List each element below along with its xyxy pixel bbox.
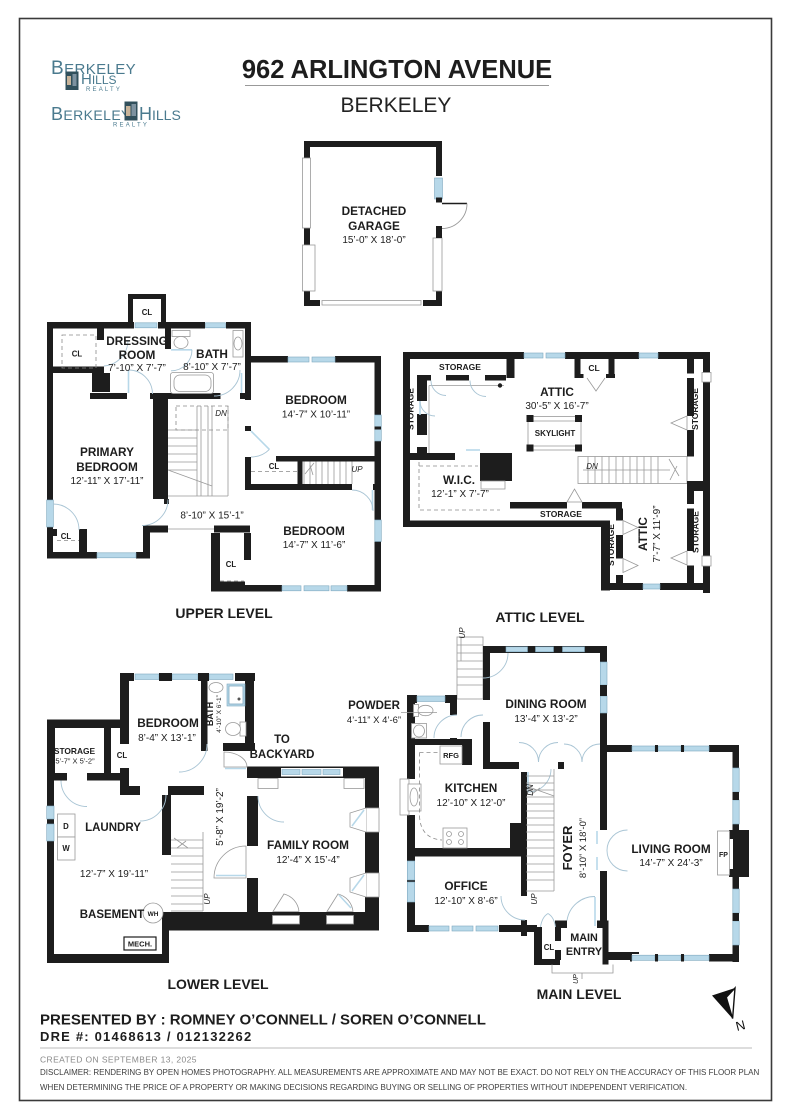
svg-text:UPPER LEVEL: UPPER LEVEL — [175, 605, 273, 621]
svg-text:ROOM: ROOM — [119, 348, 156, 362]
svg-text:MECH.: MECH. — [128, 940, 152, 949]
svg-text:W.I.C.: W.I.C. — [443, 473, 475, 487]
svg-text:12’-1” X 7’-7”: 12’-1” X 7’-7” — [431, 489, 489, 500]
svg-text:UP: UP — [203, 893, 212, 905]
svg-text:13’-4” X 13’-2”: 13’-4” X 13’-2” — [514, 714, 577, 725]
svg-text:12’-4” X 15’-4”: 12’-4” X 15’-4” — [276, 855, 339, 866]
svg-text:HILLS: HILLS — [139, 104, 181, 124]
svg-text:STORAGE: STORAGE — [406, 388, 416, 430]
svg-text:DRE #: 01468613 / 012132262: DRE #: 01468613 / 012132262 — [40, 1029, 252, 1044]
svg-text:CL: CL — [544, 943, 555, 952]
svg-text:CL: CL — [588, 363, 599, 373]
svg-text:BEDROOM: BEDROOM — [137, 716, 199, 730]
svg-text:LIVING ROOM: LIVING ROOM — [631, 842, 710, 856]
svg-text:WHEN DETERMINING THE PRICE OF: WHEN DETERMINING THE PRICE OF A PROPERTY… — [40, 1083, 687, 1092]
svg-text:CL: CL — [117, 751, 128, 760]
svg-text:RFG: RFG — [443, 751, 459, 760]
svg-text:CL: CL — [72, 350, 83, 359]
svg-text:PRESENTED BY : ROMNEY O’CONNEL: PRESENTED BY : ROMNEY O’CONNELL / SOREN … — [40, 1012, 486, 1029]
svg-text:7’-7” X 11’-9”: 7’-7” X 11’-9” — [652, 505, 663, 562]
svg-text:CL: CL — [269, 462, 280, 471]
svg-text:MAIN LEVEL: MAIN LEVEL — [537, 986, 622, 1002]
svg-text:14’-7” X 11’-6”: 14’-7” X 11’-6” — [283, 540, 346, 551]
svg-text:POWDER: POWDER — [348, 700, 400, 712]
svg-text:REALTY: REALTY — [86, 87, 122, 93]
svg-text:BASEMENT: BASEMENT — [80, 909, 145, 921]
svg-text:FAMILY ROOM: FAMILY ROOM — [267, 838, 349, 852]
svg-text:CL: CL — [61, 532, 72, 541]
svg-text:CL: CL — [226, 560, 237, 569]
svg-text:8’-4” X 13’-1”: 8’-4” X 13’-1” — [138, 733, 196, 744]
svg-text:STORAGE: STORAGE — [540, 509, 582, 519]
svg-text:GARAGE: GARAGE — [348, 219, 400, 233]
svg-text:30’-5” X 16’-7”: 30’-5” X 16’-7” — [525, 401, 588, 412]
svg-text:BATH: BATH — [205, 702, 215, 726]
svg-text:MAIN: MAIN — [570, 932, 598, 944]
svg-text:STORAGE: STORAGE — [54, 746, 96, 756]
svg-text:8’-10” X 7’-7”: 8’-10” X 7’-7” — [183, 362, 241, 373]
svg-text:DETACHED: DETACHED — [342, 204, 407, 218]
svg-text:STORAGE: STORAGE — [691, 511, 701, 553]
svg-text:BATH: BATH — [196, 347, 228, 361]
svg-text:8’-10” X 15’-1”: 8’-10” X 15’-1” — [180, 511, 243, 522]
svg-text:DRESSING: DRESSING — [106, 334, 168, 348]
svg-text:BEDROOM: BEDROOM — [76, 460, 138, 474]
svg-text:KITCHEN: KITCHEN — [445, 781, 497, 795]
svg-text:FP: FP — [719, 852, 728, 859]
svg-text:DINING ROOM: DINING ROOM — [505, 697, 586, 711]
svg-text:UP: UP — [573, 974, 580, 984]
svg-text:UP: UP — [530, 893, 539, 905]
svg-text:8’-10” X 18’-0”: 8’-10” X 18’-0” — [578, 818, 589, 878]
svg-text:ATTIC: ATTIC — [540, 385, 574, 399]
svg-text:LOWER LEVEL: LOWER LEVEL — [167, 976, 269, 992]
svg-text:BERKELEY: BERKELEY — [341, 94, 452, 117]
svg-text:12’-7” X 19’-11”: 12’-7” X 19’-11” — [80, 869, 148, 880]
svg-text:BEDROOM: BEDROOM — [283, 524, 345, 538]
svg-text:7’-10” X 7’-7”: 7’-10” X 7’-7” — [108, 363, 166, 374]
svg-text:DN: DN — [586, 462, 598, 471]
svg-text:962 ARLINGTON AVENUE: 962 ARLINGTON AVENUE — [242, 56, 552, 84]
svg-text:ATTIC LEVEL: ATTIC LEVEL — [495, 609, 585, 625]
svg-text:UP: UP — [458, 627, 467, 639]
svg-text:4’-11” X 4’-6”: 4’-11” X 4’-6” — [347, 715, 401, 726]
svg-text:STORAGE: STORAGE — [606, 524, 616, 566]
svg-text:14’-7” X 10’-11”: 14’-7” X 10’-11” — [282, 410, 350, 421]
svg-text:CREATED ON SEPTEMBER 13, 2025: CREATED ON SEPTEMBER 13, 2025 — [40, 1055, 197, 1065]
svg-text:LAUNDRY: LAUNDRY — [85, 822, 141, 834]
svg-text:WH: WH — [148, 911, 159, 918]
svg-text:12’-11” X 17’-11”: 12’-11” X 17’-11” — [71, 476, 144, 487]
svg-text:D: D — [63, 822, 69, 831]
svg-text:BEDROOM: BEDROOM — [285, 393, 347, 407]
svg-text:12’-10” X 8’-6”: 12’-10” X 8’-6” — [434, 896, 497, 907]
svg-text:UP: UP — [351, 465, 363, 474]
svg-text:FOYER: FOYER — [560, 825, 575, 870]
svg-text:14’-7” X 24’-3”: 14’-7” X 24’-3” — [639, 858, 702, 869]
svg-text:PRIMARY: PRIMARY — [80, 445, 134, 459]
svg-text:ENTRY: ENTRY — [566, 946, 603, 958]
svg-text:CL: CL — [142, 308, 153, 317]
svg-text:STORAGE: STORAGE — [690, 388, 700, 430]
svg-text:DN: DN — [215, 409, 227, 418]
svg-text:W: W — [62, 844, 70, 853]
svg-text:5’-7” X 5’-2”: 5’-7” X 5’-2” — [55, 757, 95, 766]
svg-text:DN: DN — [526, 784, 535, 796]
svg-text:SKYLIGHT: SKYLIGHT — [535, 429, 576, 438]
svg-text:12’-10” X 12’-0”: 12’-10” X 12’-0” — [437, 798, 506, 809]
svg-text:ATTIC: ATTIC — [636, 517, 650, 551]
svg-text:15’-0” X 18’-0”: 15’-0” X 18’-0” — [342, 235, 405, 246]
svg-text:BERKELEY: BERKELEY — [51, 104, 131, 124]
svg-text:5’-8” X 19’-2”: 5’-8” X 19’-2” — [215, 788, 226, 846]
svg-text:TO: TO — [274, 734, 290, 746]
svg-text:DISCLAIMER: RENDERING BY OPEN: DISCLAIMER: RENDERING BY OPEN HOMES PHOT… — [40, 1068, 760, 1077]
svg-text:OFFICE: OFFICE — [444, 879, 487, 893]
svg-text:STORAGE: STORAGE — [439, 362, 481, 372]
svg-text:BACKYARD: BACKYARD — [250, 749, 315, 761]
svg-text:REALTY: REALTY — [113, 123, 149, 129]
svg-text:4’-10” X 6’-1”: 4’-10” X 6’-1” — [216, 695, 223, 733]
svg-text:HILLS: HILLS — [81, 71, 117, 88]
